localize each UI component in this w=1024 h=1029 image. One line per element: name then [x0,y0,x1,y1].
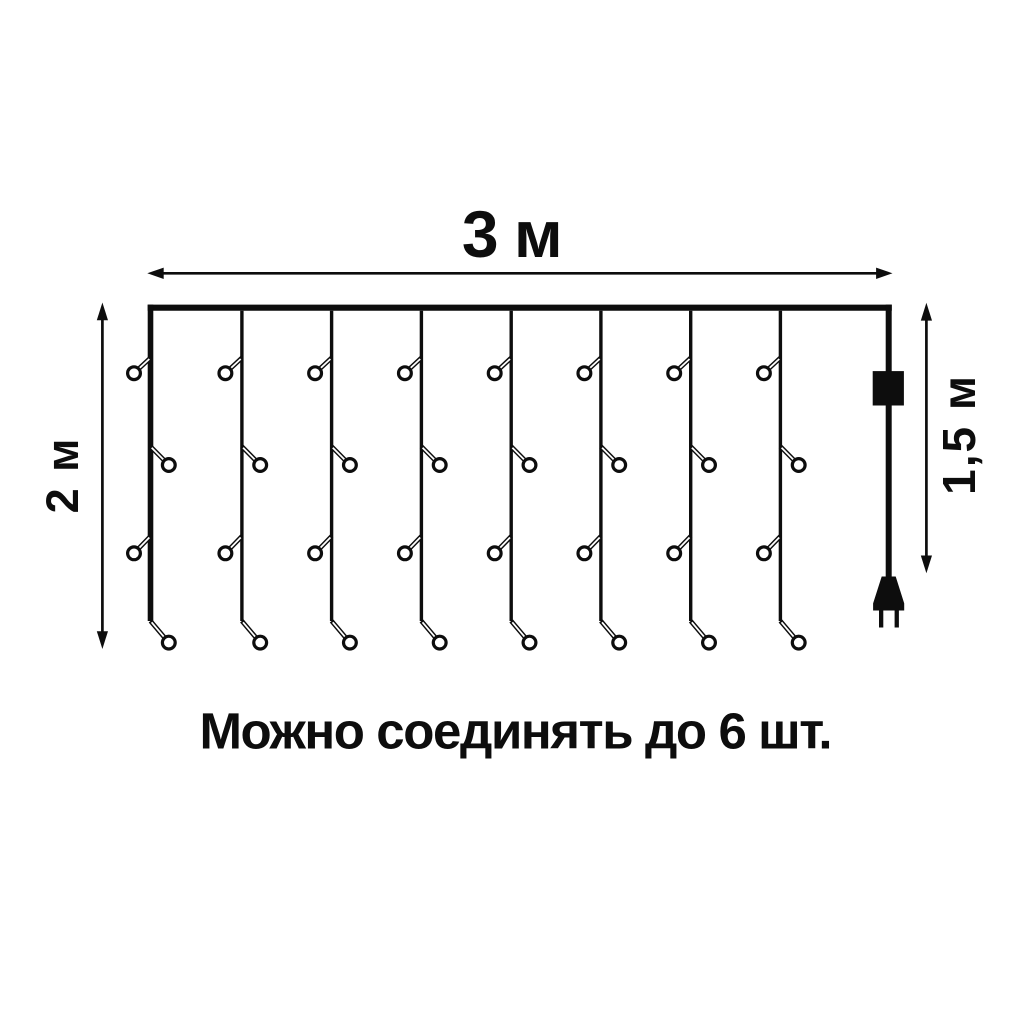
svg-text:Можно соединять до 6 шт.: Можно соединять до 6 шт. [199,703,831,760]
svg-text:3 м: 3 м [462,197,561,271]
svg-text:2 м: 2 м [37,437,88,514]
svg-text:1,5 м: 1,5 м [933,374,985,495]
